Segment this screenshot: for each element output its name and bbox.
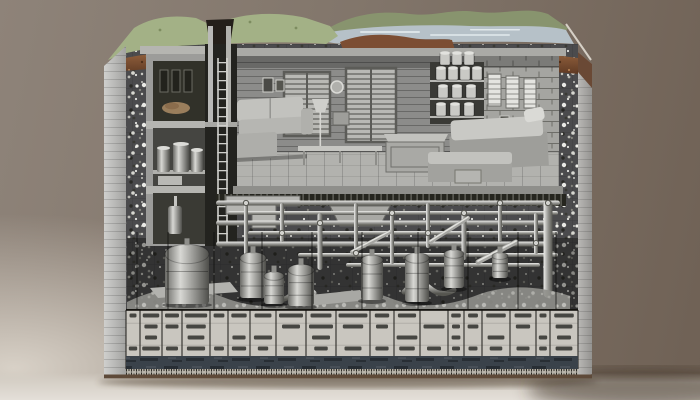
- table-cell-text: [214, 314, 225, 318]
- lake-reflection: [360, 31, 420, 33]
- tank-dome: [444, 250, 464, 259]
- table-cell-text: [488, 336, 505, 340]
- can-lid: [452, 84, 462, 88]
- table-cell-text: [376, 325, 388, 329]
- ceiling-beam: [237, 48, 566, 56]
- table-cell-text: [166, 325, 179, 329]
- scene-stage: [0, 0, 700, 400]
- pipe-riser: [498, 203, 502, 242]
- canister-lid: [191, 148, 203, 152]
- ladder-rung: [217, 107, 228, 108]
- ladder-rung: [217, 233, 228, 234]
- block-base-edge: [104, 375, 592, 379]
- table-cell-text: [452, 347, 460, 351]
- ladder-rung: [217, 152, 228, 153]
- tank-valve: [272, 266, 277, 273]
- table-cell-text: [554, 314, 574, 318]
- pipe-joint: [243, 200, 248, 205]
- pipe-riser: [354, 203, 358, 254]
- table-cell-text: [451, 314, 461, 318]
- block-right-face: [578, 52, 592, 378]
- cell-niche: [172, 70, 180, 92]
- table-cell-text: [557, 336, 571, 340]
- ladder-rung: [217, 125, 228, 126]
- tank-valve: [498, 246, 503, 253]
- table-cell-text: [311, 314, 332, 318]
- tank-valve: [452, 244, 457, 251]
- table-cell-text: [539, 336, 547, 340]
- ladder-rung: [217, 143, 228, 144]
- can: [466, 86, 476, 98]
- stored-item-shade: [165, 103, 179, 110]
- tank-dome: [264, 272, 284, 281]
- can: [436, 104, 446, 116]
- right-face-shade: [578, 52, 592, 378]
- table-cell-text: [144, 325, 157, 329]
- table-cell-text: [279, 314, 303, 318]
- pipe-run: [248, 231, 558, 235]
- pipe-joint: [317, 220, 322, 225]
- pipe-riser: [544, 200, 553, 298]
- can-lid: [464, 51, 474, 55]
- wall-clock: [331, 81, 343, 93]
- wall-frame: [263, 78, 273, 92]
- tank-dome: [165, 244, 209, 263]
- nightstand-crate: [455, 170, 481, 183]
- tank-dome: [361, 255, 383, 265]
- table-cell-text: [166, 347, 178, 351]
- tank-valve: [299, 258, 304, 265]
- canister-lid: [157, 146, 170, 150]
- can: [438, 86, 448, 98]
- ladder-rung: [217, 134, 228, 135]
- table-cell-text: [343, 325, 363, 329]
- ceiling-shadow: [237, 56, 559, 68]
- block-left-face: [104, 46, 126, 378]
- table-cell-text: [186, 325, 206, 329]
- table-cell-text: [142, 347, 160, 351]
- tank-dome: [405, 253, 429, 264]
- table-cell-text: [452, 336, 461, 340]
- table-cell-text: [452, 325, 460, 329]
- scene-illustration: [0, 0, 700, 400]
- table-cell-text: [254, 336, 272, 340]
- table-cell-text: [517, 347, 530, 351]
- ladder-rail: [217, 58, 219, 242]
- can-lid: [466, 84, 476, 88]
- table-cell-text: [516, 325, 530, 329]
- pipe-joint: [497, 200, 502, 205]
- table-cell-text: [309, 325, 333, 329]
- table-cell-text: [312, 336, 330, 340]
- table-cell-text: [468, 314, 478, 318]
- can-lid: [436, 102, 446, 106]
- can-lid: [448, 66, 458, 70]
- boiler-tank: [402, 247, 432, 306]
- tank-body: [405, 258, 429, 302]
- ladder-rung: [217, 71, 228, 72]
- can: [452, 86, 462, 98]
- pipe-joint: [533, 240, 538, 245]
- floor-lamp-pole: [320, 112, 322, 146]
- boiler-tank: [162, 238, 212, 308]
- can-lid: [472, 66, 482, 70]
- tank-valve: [185, 238, 190, 245]
- tank-valve: [251, 246, 256, 253]
- ladder-rung: [217, 80, 228, 81]
- table-cell-text: [143, 314, 160, 318]
- can-lid: [450, 102, 460, 106]
- can: [460, 68, 470, 80]
- table-cell-text: [187, 347, 205, 351]
- table-cell-text: [284, 347, 299, 351]
- table-cell-text: [540, 314, 547, 318]
- ladder-rung: [217, 62, 228, 63]
- can-lid: [438, 84, 448, 88]
- grass-tuft: [159, 29, 162, 32]
- table-cell-text: [556, 347, 573, 351]
- tank-valve: [370, 249, 375, 256]
- living-room: [233, 48, 566, 194]
- cell-niche: [160, 70, 168, 92]
- table-cell-text: [129, 347, 137, 351]
- pipe-riser: [244, 203, 248, 260]
- ladder-rung: [217, 116, 228, 117]
- table-cell-text: [145, 336, 157, 340]
- table-cell-text: [232, 347, 246, 351]
- table-cell-text: [282, 325, 300, 329]
- pipe-run: [216, 201, 560, 206]
- table-cell-text: [231, 314, 246, 318]
- data-table: [104, 309, 592, 378]
- can: [450, 104, 460, 116]
- heater-pipe: [174, 196, 177, 206]
- cell-niche: [184, 70, 192, 92]
- pipe-riser: [390, 213, 394, 264]
- canister-lid: [173, 142, 189, 146]
- tank-body: [361, 260, 383, 300]
- can-lid: [436, 66, 446, 70]
- pipe-riser: [280, 203, 284, 242]
- pipe-riser: [534, 213, 538, 254]
- can-lid: [460, 66, 470, 70]
- water-band-mottle: [126, 356, 578, 369]
- table-cell-text: [397, 336, 418, 340]
- table-cell-text: [339, 314, 368, 318]
- can: [436, 68, 446, 80]
- table-cell-text: [468, 325, 479, 329]
- ladder-rung: [217, 89, 228, 90]
- table-cell-text: [486, 314, 506, 318]
- lake-reflection: [430, 34, 510, 36]
- left-face-banding: [104, 46, 126, 378]
- tank-valve: [415, 247, 420, 254]
- grass-tuft: [249, 21, 252, 24]
- table-cell-text: [188, 336, 205, 340]
- pipe-joint: [389, 210, 394, 215]
- wall-frame: [276, 80, 284, 91]
- table-cell-text: [130, 314, 137, 318]
- bright-window: [524, 78, 536, 108]
- table-cell-text: [398, 314, 416, 318]
- table-cell-text: [424, 325, 445, 329]
- table-cell-text: [427, 347, 441, 351]
- can-lid: [452, 51, 462, 55]
- table-cell-text: [556, 325, 573, 329]
- pipe-joint: [279, 230, 284, 235]
- ruler-ticks: [126, 369, 578, 375]
- ladder-rung: [217, 98, 228, 99]
- table-cell-text: [490, 347, 503, 351]
- pipe-joint: [461, 210, 466, 215]
- pipe-run: [216, 221, 546, 226]
- table-top-border: [126, 309, 578, 311]
- canister: [173, 144, 189, 172]
- table-cell-text: [515, 314, 532, 318]
- pipe-run: [216, 242, 552, 247]
- can-lid: [440, 51, 450, 55]
- vent-duct: [208, 26, 213, 126]
- can: [464, 104, 474, 116]
- supply-box: [158, 176, 182, 185]
- ladder-rung: [217, 215, 228, 216]
- tank-dome: [288, 264, 314, 275]
- table-cell-text: [375, 347, 388, 351]
- table-cell-text: [255, 314, 272, 318]
- window-mullion: [370, 68, 372, 142]
- table-cell-text: [314, 347, 328, 351]
- wall-cabinet: [333, 112, 349, 125]
- pipe-joint: [425, 230, 430, 235]
- table-cell-text: [214, 347, 224, 351]
- can-lid: [464, 102, 474, 106]
- ladder-rung: [217, 170, 228, 171]
- floor-slab-edge: [233, 186, 563, 194]
- bright-window: [506, 76, 519, 108]
- small-water-heater: [168, 206, 182, 234]
- table-cell-text: [539, 347, 547, 351]
- table-cell-text: [165, 314, 179, 318]
- lake-reflection: [470, 29, 520, 31]
- canister: [157, 148, 170, 172]
- table-cell-text: [399, 347, 415, 351]
- ladder-rung: [217, 179, 228, 180]
- tank-body: [444, 254, 464, 288]
- grass-tuft: [295, 27, 298, 30]
- canister: [191, 150, 203, 172]
- bright-window: [488, 74, 501, 106]
- can: [448, 68, 458, 80]
- table-cell-text: [185, 314, 207, 318]
- table-cell-text: [345, 347, 362, 351]
- table-cell-text: [232, 336, 245, 340]
- ladder-rung: [217, 161, 228, 162]
- can: [472, 68, 482, 80]
- pipe-joint: [545, 200, 550, 205]
- ladder-rung: [217, 188, 228, 189]
- table-cell-text: [375, 314, 389, 318]
- tank-dome: [492, 252, 508, 259]
- pipe-joint: [353, 250, 358, 255]
- table-cell-text: [258, 347, 268, 351]
- table-cell-text: [469, 347, 478, 351]
